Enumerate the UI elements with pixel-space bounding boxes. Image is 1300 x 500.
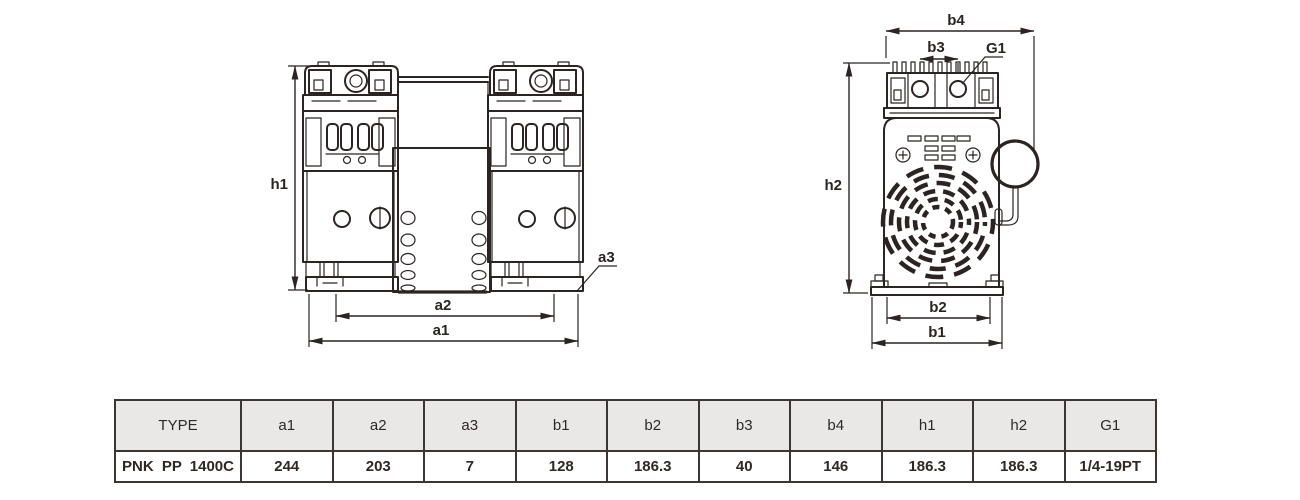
cylinder-head-side — [884, 73, 1000, 118]
cell-a1: 244 — [241, 451, 333, 482]
dimension-table: TYPE a1 a2 a3 b1 b2 b3 b4 h1 h2 G1 PNK P… — [114, 399, 1157, 483]
dim-b2: b2 — [887, 297, 990, 324]
cell-a2: 203 — [333, 451, 425, 482]
cell-h2: 186.3 — [973, 451, 1065, 482]
cell-h1: 186.3 — [882, 451, 974, 482]
col-header-g1: G1 — [1065, 400, 1157, 451]
vent-slots — [908, 136, 970, 160]
port-g1 — [950, 81, 966, 97]
dim-label-h2: h2 — [824, 177, 842, 194]
cell-b3: 40 — [699, 451, 791, 482]
dim-b3: b3 — [920, 39, 958, 73]
cell-b2: 186.3 — [607, 451, 699, 482]
table-header-row: TYPE a1 a2 a3 b1 b2 b3 b4 h1 h2 G1 — [115, 400, 1156, 451]
dim-label-b2: b2 — [929, 299, 947, 316]
col-header-a3: a3 — [424, 400, 516, 451]
phillips-screw-right — [966, 148, 980, 162]
technical-drawing: h1 a2 a1 a3 — [0, 0, 1300, 395]
dim-label-g1: G1 — [986, 40, 1006, 57]
col-header-b1: b1 — [516, 400, 608, 451]
col-header-b4: b4 — [790, 400, 882, 451]
col-header-b3: b3 — [699, 400, 791, 451]
col-header-a1: a1 — [241, 400, 333, 451]
dim-label-a1: a1 — [433, 322, 450, 339]
dim-label-a2: a2 — [435, 297, 452, 314]
cell-b4: 146 — [790, 451, 882, 482]
cell-g1: 1/4-19PT — [1065, 451, 1157, 482]
col-header-a2: a2 — [333, 400, 425, 451]
pump-head-right — [488, 62, 583, 291]
cell-a3: 7 — [424, 451, 516, 482]
vent-holes-right-column — [472, 212, 486, 292]
dim-a2: a2 — [336, 294, 554, 322]
col-header-type: TYPE — [115, 400, 241, 451]
dim-label-b3: b3 — [927, 39, 945, 56]
motor-body-side — [883, 118, 999, 287]
cell-b1: 128 — [516, 451, 608, 482]
front-view: h1 a2 a1 a3 — [270, 62, 617, 347]
table-row: PNK PP 1400C 244 203 7 128 186.3 40 146 … — [115, 451, 1156, 482]
dim-label-a3: a3 — [598, 249, 615, 266]
dim-h1: h1 — [270, 66, 310, 290]
fan-grille — [883, 167, 993, 277]
phillips-screw-left — [896, 148, 910, 162]
side-view: b4 b3 G1 h2 b2 — [824, 12, 1038, 349]
vent-holes-left-column — [401, 212, 415, 292]
col-header-h1: h1 — [882, 400, 974, 451]
dim-label-b1: b1 — [928, 324, 946, 341]
col-header-h2: h2 — [973, 400, 1065, 451]
dim-h2: h2 — [824, 63, 890, 293]
dim-label-b4: b4 — [947, 12, 965, 29]
datasheet-page: h1 a2 a1 a3 — [0, 0, 1300, 500]
pump-head-left — [303, 62, 398, 291]
dim-label-h1: h1 — [270, 176, 288, 193]
motor-body-front — [393, 77, 490, 292]
cell-type: PNK PP 1400C — [115, 451, 241, 482]
port-left — [912, 81, 928, 97]
col-header-b2: b2 — [607, 400, 699, 451]
